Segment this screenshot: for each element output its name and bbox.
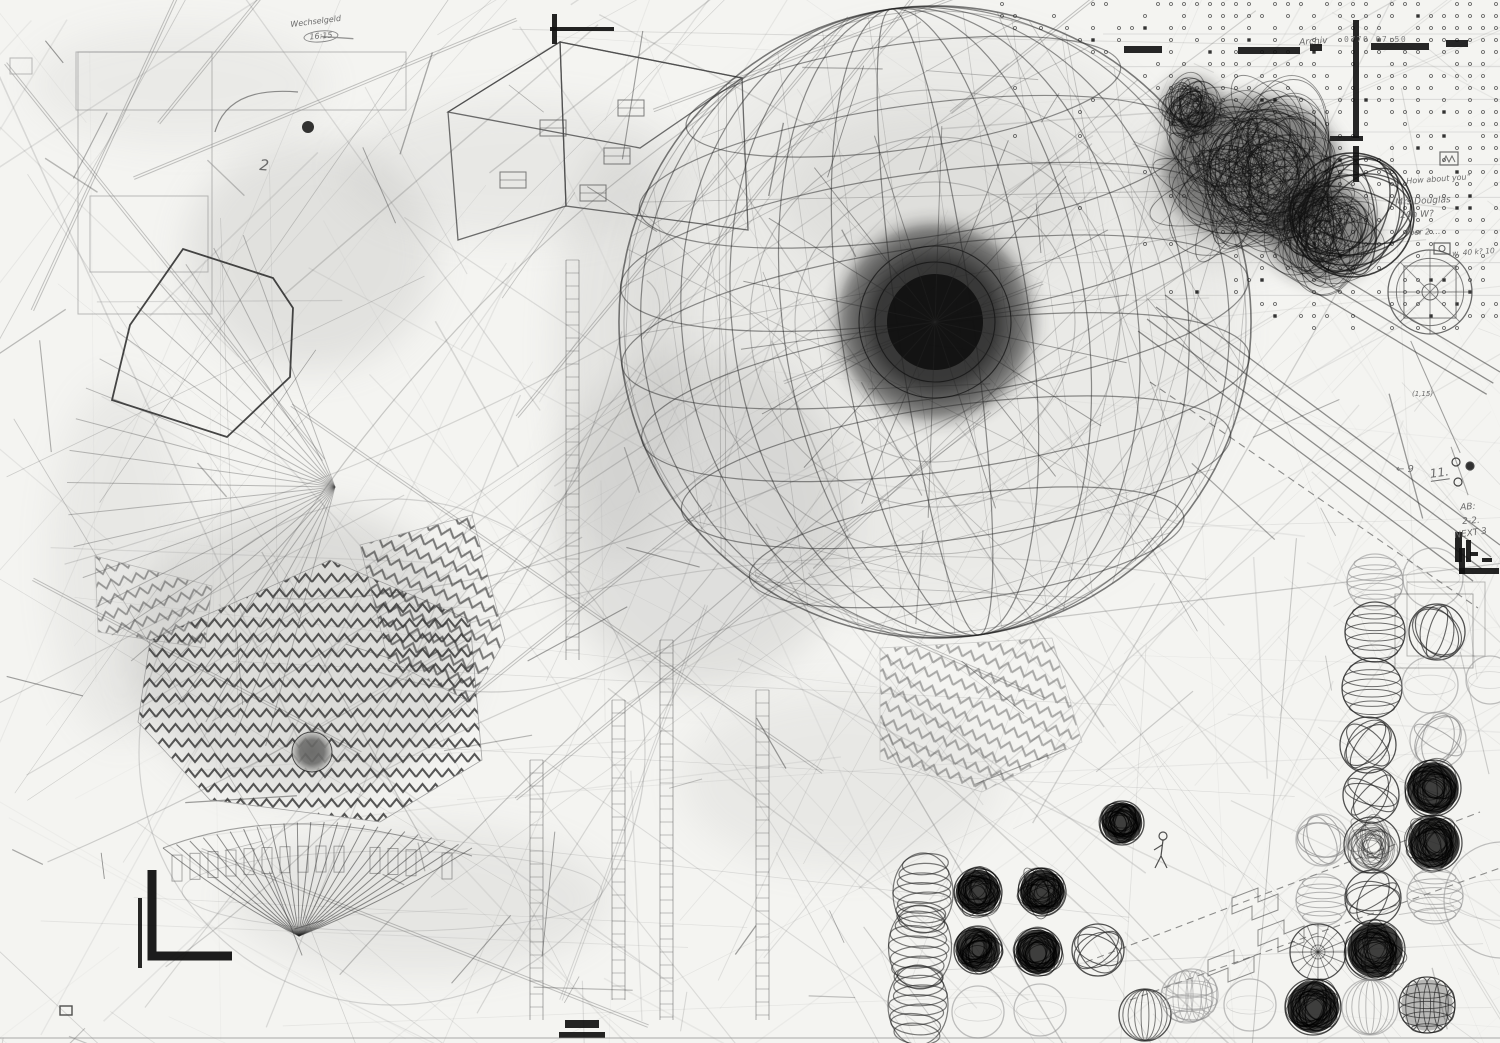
mandala-wheel — [1388, 250, 1472, 334]
sphere-lat — [1345, 602, 1405, 662]
ladder — [612, 700, 625, 1000]
sphere-dark — [1007, 921, 1069, 983]
sphere-dark — [1091, 796, 1147, 850]
ladder — [530, 760, 543, 1020]
sphere-stripes — [1342, 979, 1398, 1035]
sphere-dark — [1016, 864, 1072, 921]
step-bracket — [1258, 920, 1304, 952]
sphere-plain — [952, 986, 1004, 1038]
sphere-coil — [888, 964, 948, 1043]
sphere-dark — [1400, 808, 1465, 874]
drawing-root — [0, 0, 1500, 1043]
sphere-grid — [1166, 969, 1218, 1021]
sphere-plain — [1402, 657, 1458, 713]
sphere-plain — [1403, 548, 1463, 608]
sphere-radial — [1290, 924, 1346, 980]
artwork-stage: Wechselgeld16:152Archiv0770 07:50„How ab… — [0, 0, 1500, 1043]
sphere-cross — [1399, 977, 1455, 1033]
sphere-lat — [1407, 868, 1463, 924]
sphere-lat — [1342, 658, 1402, 718]
tiny-figure — [1154, 832, 1167, 868]
sphere-orbit — [1069, 920, 1128, 981]
sphere-lat — [1296, 874, 1348, 926]
drawing-svg — [0, 0, 1500, 1043]
sphere-plain — [1014, 984, 1066, 1036]
